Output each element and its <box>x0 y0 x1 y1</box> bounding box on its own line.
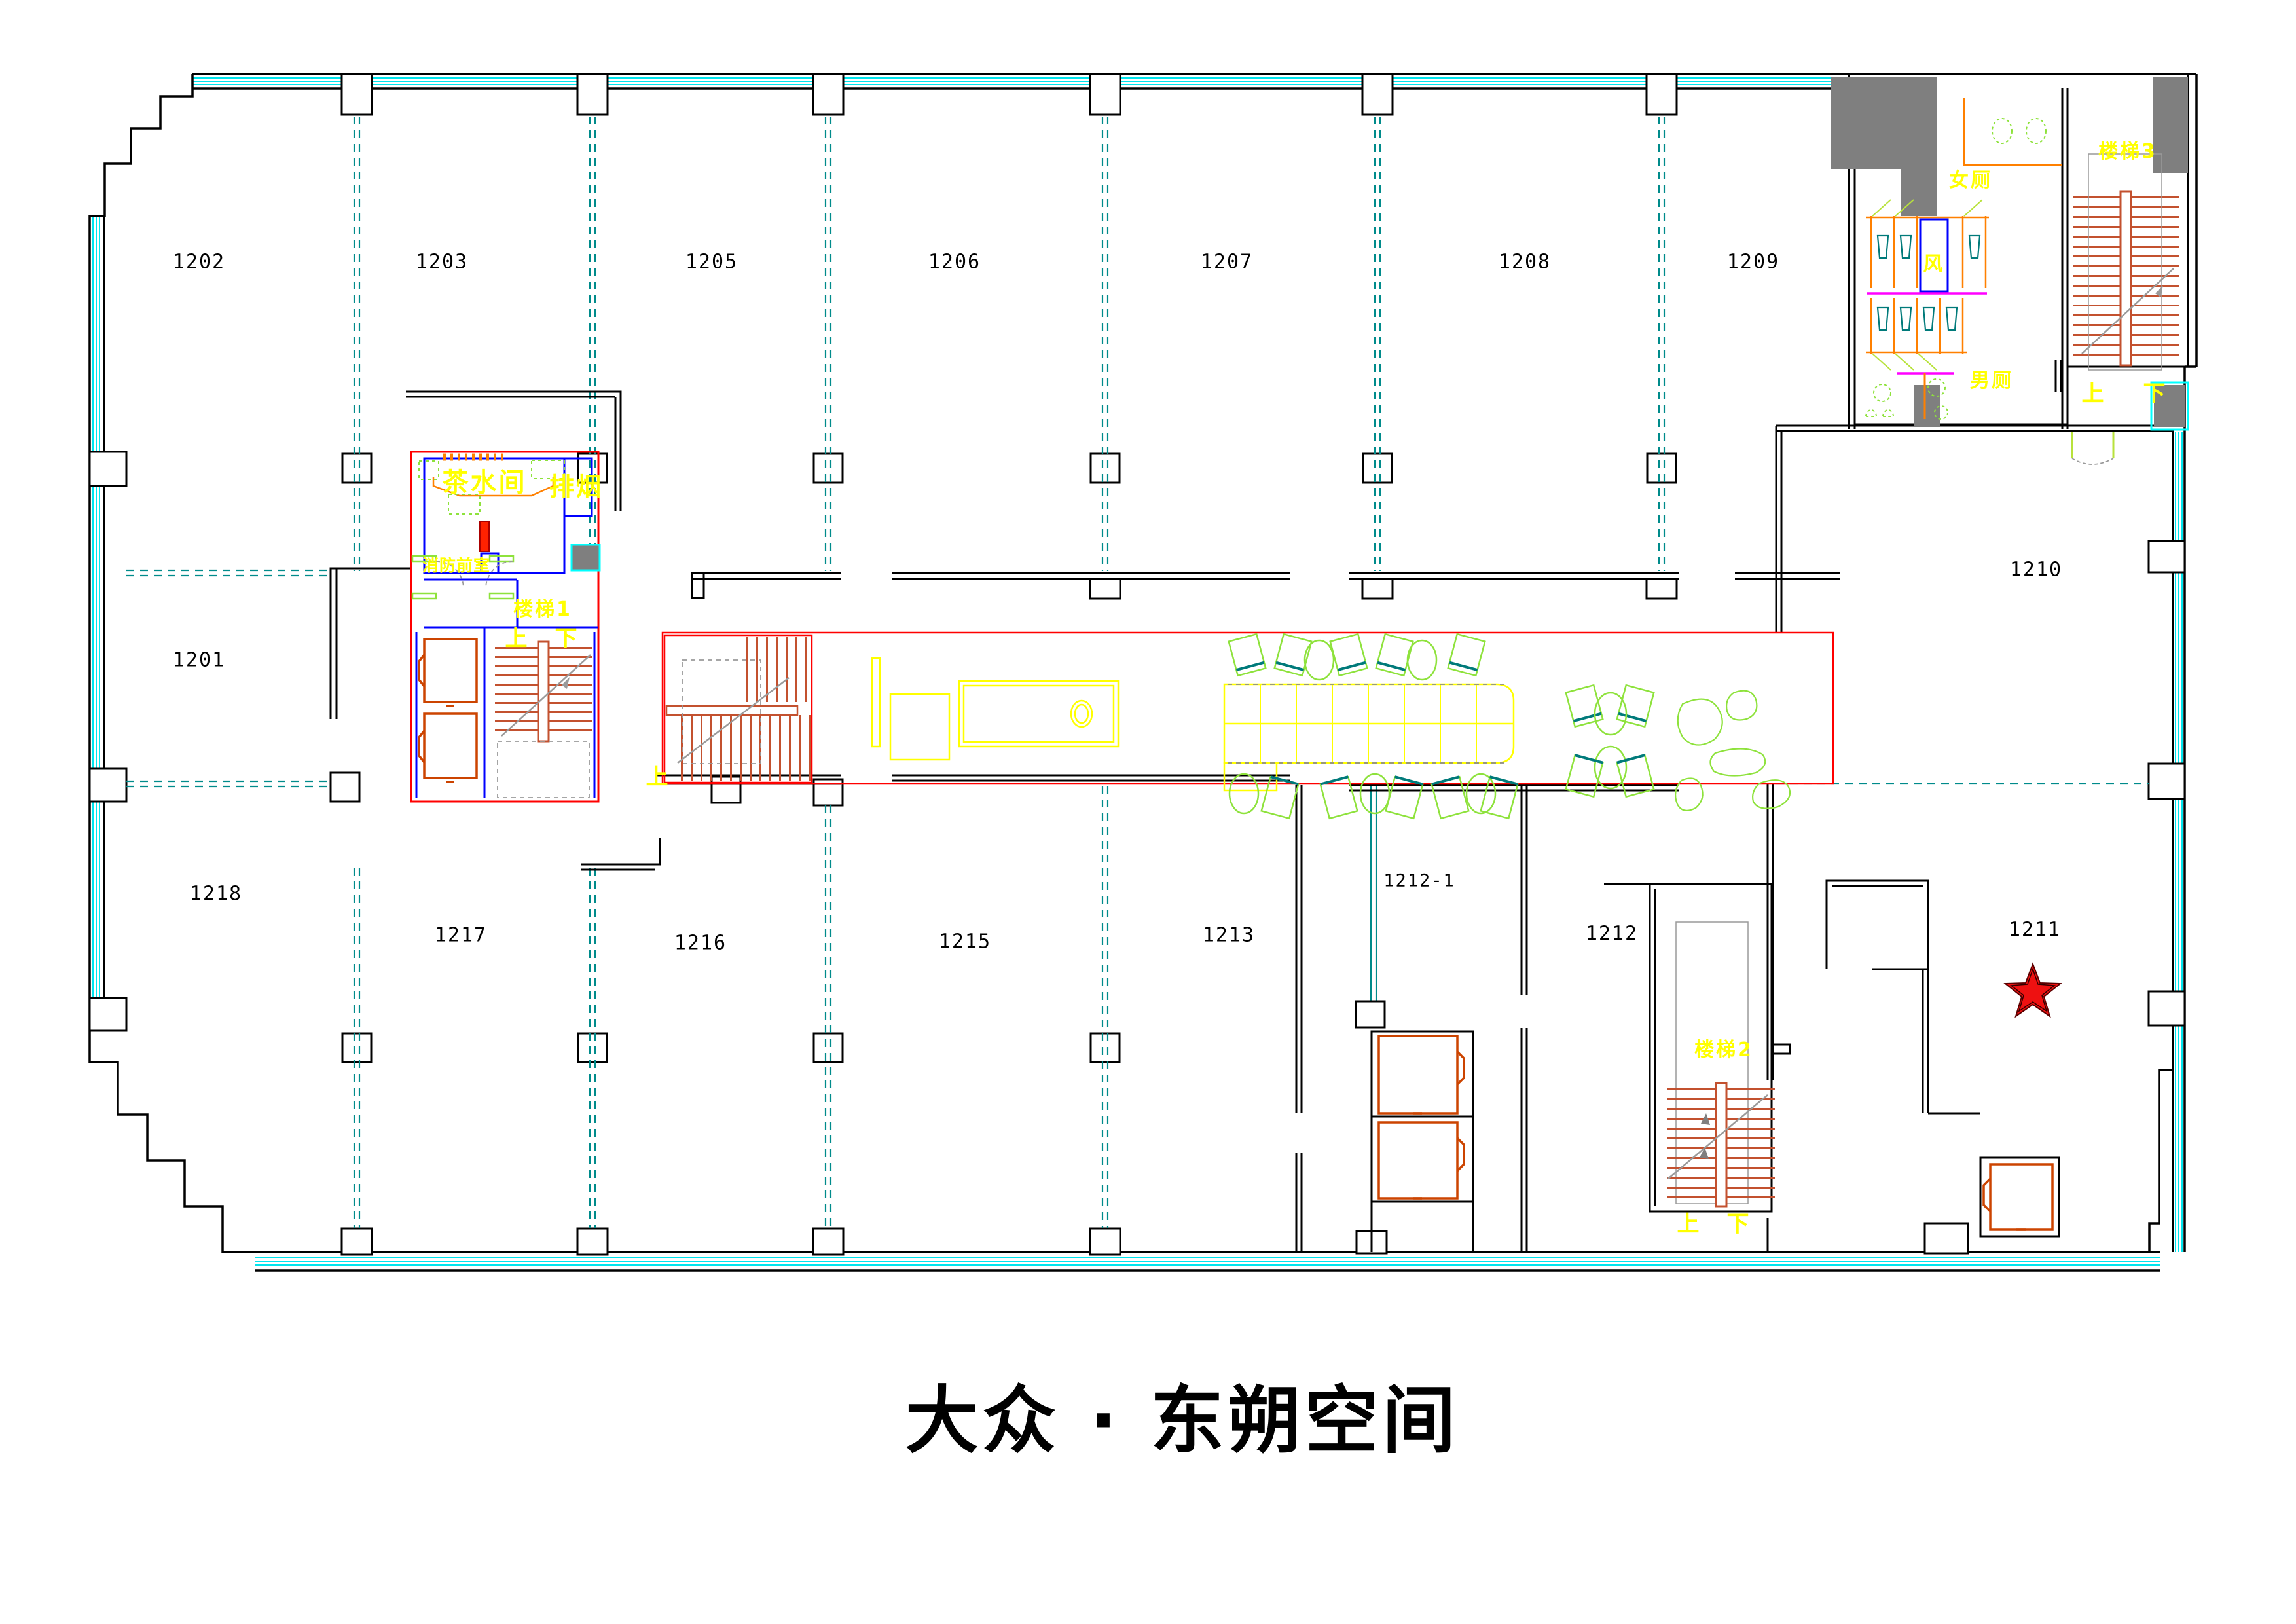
room-label-1203: 1203 <box>416 251 468 274</box>
stair2 <box>1668 922 1768 1206</box>
curtain-wall-glazing <box>93 78 2182 1265</box>
stair3-down-label: 下 <box>2143 376 2168 408</box>
corridor-stair-up-label: 上 <box>646 759 670 791</box>
room-label-1209: 1209 <box>1727 251 1779 274</box>
room-label-1207: 1207 <box>1201 251 1253 274</box>
corridor-stair <box>665 635 812 783</box>
room-label-1212-1: 1212-1 <box>1383 871 1455 891</box>
smoke-exhaust-label: 排烟 <box>549 467 603 503</box>
room-label-1217: 1217 <box>435 924 487 947</box>
stair3-door <box>2072 432 2113 464</box>
room-label-1202: 1202 <box>173 251 225 274</box>
stair2-down-label: 下 <box>1727 1206 1751 1238</box>
stair1-up-label: 上 <box>505 621 530 653</box>
core-elevators <box>419 639 477 782</box>
stair1-label: 楼梯1 <box>513 593 572 621</box>
core-gray-column <box>572 545 600 570</box>
room-label-1205: 1205 <box>685 251 738 274</box>
room-label-1215: 1215 <box>939 931 991 953</box>
room-label-1206: 1206 <box>928 251 981 274</box>
womens-toilet-label: 女厕 <box>1949 164 1992 193</box>
room-label-1208: 1208 <box>1499 251 1551 274</box>
stair2-up-label: 上 <box>1677 1206 1702 1238</box>
stair2-label: 楼梯2 <box>1694 1033 1753 1062</box>
air-shaft-label: 风 <box>1923 248 1945 276</box>
room-label-1216: 1216 <box>674 932 727 955</box>
fire-hydrant <box>480 521 489 551</box>
location-star-icon[interactable] <box>2005 964 2060 1016</box>
room-label-1218: 1218 <box>190 883 242 906</box>
stair1 <box>498 642 591 798</box>
reception-furniture <box>872 658 1118 760</box>
room-label-1211: 1211 <box>2009 919 2061 942</box>
room-label-1213: 1213 <box>1203 924 1255 947</box>
fire-lobby-label: 消防前室 <box>422 553 490 576</box>
room-label-1201: 1201 <box>173 649 225 672</box>
stair3-up-label: 上 <box>2082 376 2106 408</box>
floor-plan: 1202 1203 1205 1206 1207 1208 1209 1201 … <box>0 0 2296 1624</box>
tea-room-label: 茶水间 <box>443 461 527 499</box>
stair1-down-label: 下 <box>555 621 579 653</box>
room-label-1210: 1210 <box>2010 559 2062 581</box>
plan-title: 大众 · 东朔空间 <box>905 1361 1460 1467</box>
grid-lines <box>126 117 2149 1228</box>
outer-walls <box>90 74 2196 1270</box>
grid-lines-solid <box>1356 785 1385 1027</box>
mens-toilet-label: 男厕 <box>1970 364 2013 393</box>
stair3-label: 楼梯3 <box>2098 135 2157 164</box>
room-label-1212: 1212 <box>1586 923 1638 946</box>
